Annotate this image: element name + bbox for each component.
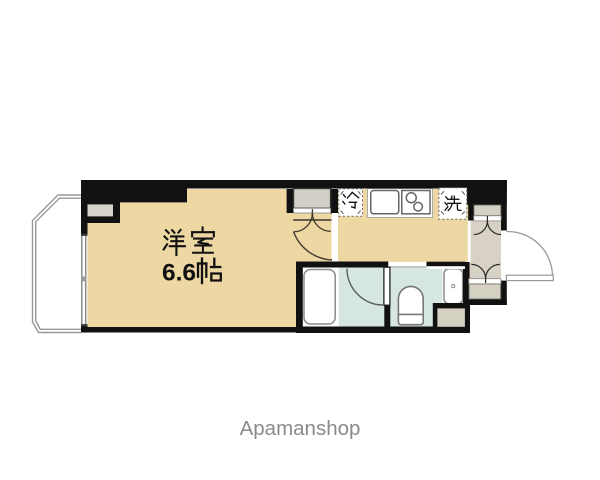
svg-text:Apamanshop: Apamanshop <box>240 417 361 440</box>
svg-text:6.6: 6.6 <box>162 259 196 286</box>
